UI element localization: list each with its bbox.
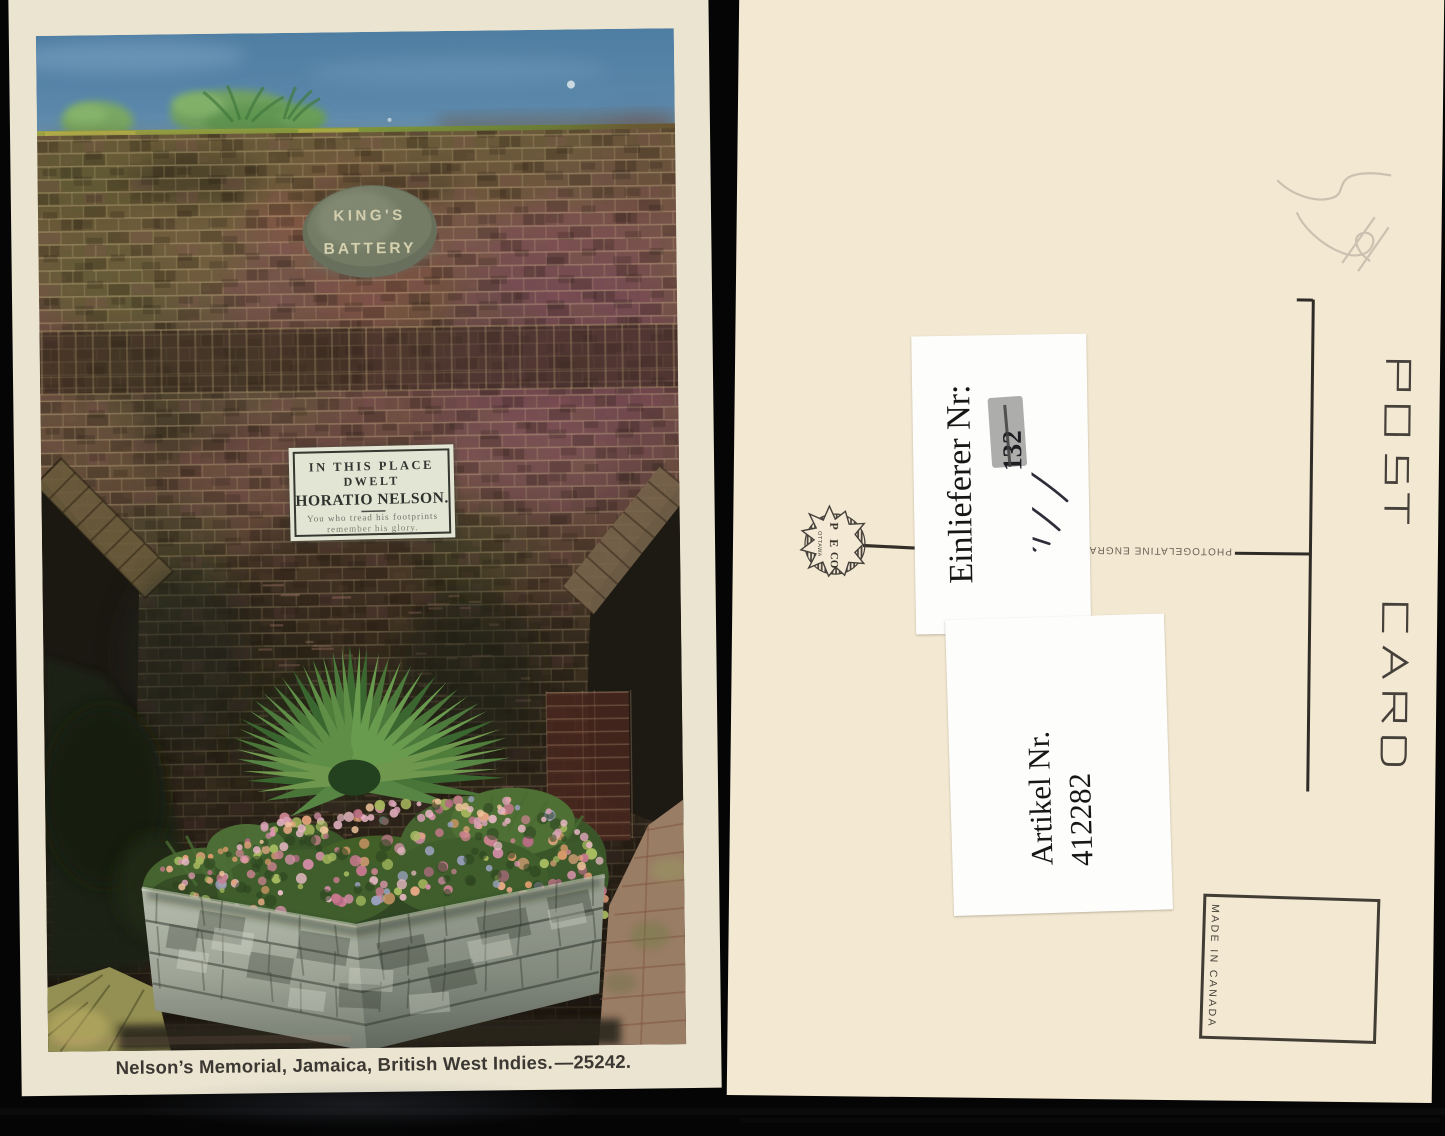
svg-text:DWELT: DWELT (343, 474, 400, 489)
svg-text:HORATIO NELSON.: HORATIO NELSON. (295, 489, 449, 509)
svg-text:CO: CO (828, 552, 840, 569)
svg-text:P: P (827, 522, 841, 530)
svg-text:OTTAWA: OTTAWA (816, 531, 822, 557)
svg-text:IN THIS PLACE: IN THIS PLACE (309, 458, 434, 475)
svg-text:BATTERY: BATTERY (323, 240, 416, 258)
svg-text:remember his glory.: remember his glory. (327, 522, 419, 534)
svg-text:E: E (827, 539, 841, 547)
svg-text:KING'S: KING'S (333, 207, 406, 225)
